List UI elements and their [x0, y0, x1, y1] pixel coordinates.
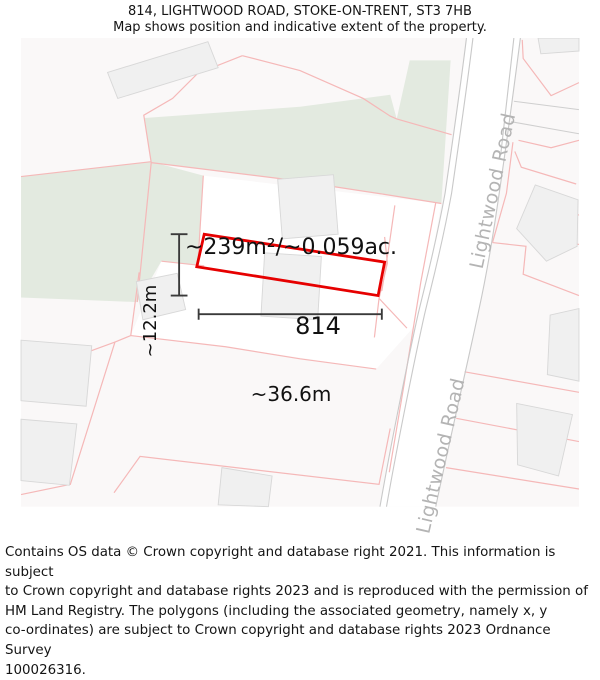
building — [547, 309, 579, 382]
plot-number-label: 814 — [278, 312, 358, 340]
copyright-line: co-ordinates) are subject to Crown copyr… — [5, 621, 595, 660]
copyright-line: Contains OS data © Crown copyright and d… — [5, 543, 595, 582]
header: 814, LIGHTWOOD ROAD, STOKE-ON-TRENT, ST3… — [0, 0, 600, 36]
building — [538, 38, 579, 54]
copyright-line: HM Land Registry. The polygons (includin… — [5, 602, 595, 622]
copyright-line: to Crown copyright and database rights 2… — [5, 582, 595, 602]
page-title: 814, LIGHTWOOD ROAD, STOKE-ON-TRENT, ST3… — [0, 4, 600, 20]
area-label: ~239m²/~0.059ac. — [150, 235, 432, 260]
building — [278, 175, 338, 239]
page: { "header": { "title": "814, LIGHTWOOD R… — [0, 0, 600, 625]
building — [21, 340, 92, 406]
width-dimension-label: ~36.6m — [231, 382, 351, 406]
height-dimension-label: ~12.2m — [140, 261, 162, 381]
page-subtitle: Map shows position and indicative extent… — [0, 20, 600, 36]
copyright-notice: Contains OS data © Crown copyright and d… — [0, 543, 595, 680]
building — [21, 419, 77, 485]
property-map: ~239m²/~0.059ac. 814 ~36.6m ~12.2m Light… — [0, 38, 600, 542]
copyright-line: 100026316. — [5, 661, 595, 680]
